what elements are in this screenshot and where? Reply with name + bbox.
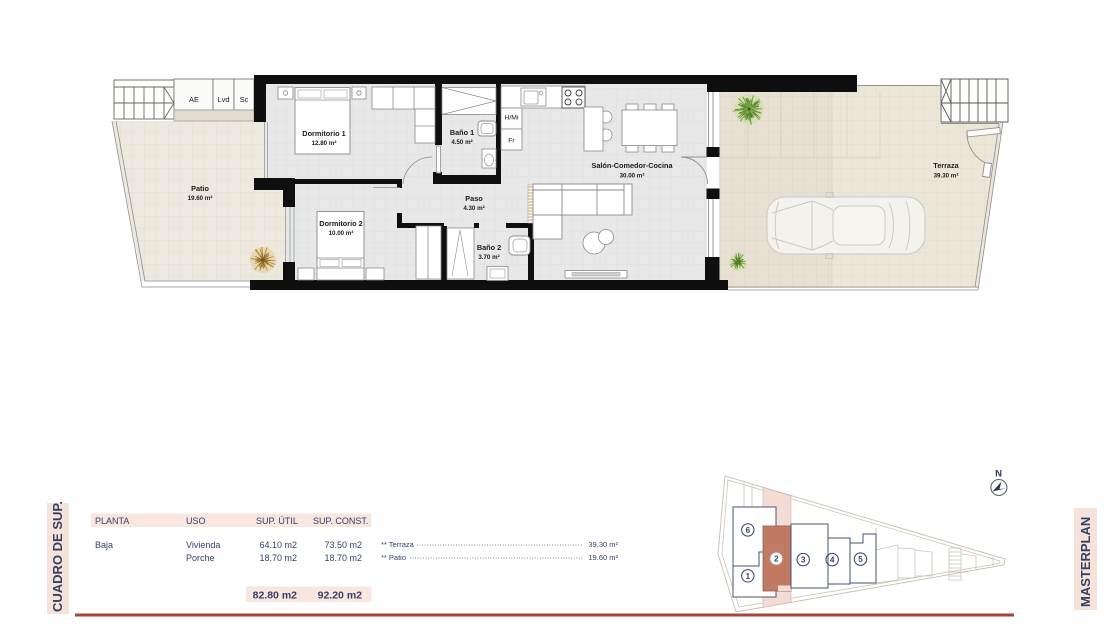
svg-text:Baño 1: Baño 1 [450, 128, 474, 137]
svg-text:64.10 m2: 64.10 m2 [259, 540, 297, 550]
svg-text:Patio: Patio [191, 184, 209, 193]
svg-text:18.70 m2: 18.70 m2 [259, 553, 297, 563]
svg-text:Salón-Comedor-Cocina: Salón-Comedor-Cocina [591, 161, 673, 170]
svg-text:4.50 m²: 4.50 m² [451, 139, 472, 146]
svg-text:** Patio: ** Patio [381, 553, 406, 562]
svg-text:2: 2 [774, 555, 779, 564]
svg-text:Porche: Porche [186, 553, 215, 563]
svg-text:12.80 m²: 12.80 m² [312, 140, 337, 147]
svg-text:4.30 m²: 4.30 m² [463, 205, 484, 212]
svg-text:Dormitorio 1: Dormitorio 1 [302, 129, 345, 138]
svg-text:Paso: Paso [465, 194, 483, 203]
svg-text:AE: AE [189, 95, 199, 104]
svg-text:92.20 m2: 92.20 m2 [318, 590, 363, 602]
svg-text:N: N [995, 469, 1002, 480]
svg-text:30.00 m²: 30.00 m² [620, 173, 645, 180]
svg-text:1: 1 [746, 572, 751, 581]
svg-text:5: 5 [858, 555, 863, 564]
svg-text:Sc: Sc [240, 95, 249, 104]
svg-text:19.60 m²: 19.60 m² [188, 195, 213, 202]
svg-text:Vivienda: Vivienda [186, 540, 220, 550]
svg-text:SUP. CONST.: SUP. CONST. [313, 516, 368, 526]
svg-text:19.60 m²: 19.60 m² [588, 553, 618, 562]
svg-text:Baño 2: Baño 2 [477, 243, 501, 252]
svg-text:39.30 m²: 39.30 m² [934, 173, 959, 180]
svg-text:18.70 m2: 18.70 m2 [324, 553, 362, 563]
svg-text:SUP. ÚTIL: SUP. ÚTIL [256, 516, 298, 526]
svg-text:H/Mi: H/Mi [505, 115, 519, 122]
svg-text:3.70 m²: 3.70 m² [478, 254, 499, 261]
svg-text:10.00 m²: 10.00 m² [329, 230, 354, 237]
svg-text:USO: USO [186, 516, 206, 526]
svg-text:3: 3 [801, 556, 806, 565]
svg-text:Lvd: Lvd [217, 95, 229, 104]
svg-text:MASTERPLAN: MASTERPLAN [1078, 517, 1093, 607]
svg-text:4: 4 [830, 556, 835, 565]
svg-text:Dormitorio 2: Dormitorio 2 [319, 219, 362, 228]
svg-text:Terraza: Terraza [933, 161, 959, 170]
svg-text:39.30 m²: 39.30 m² [588, 540, 618, 549]
svg-text:** Terraza: ** Terraza [381, 540, 415, 549]
svg-text:6: 6 [746, 526, 751, 535]
svg-text:PLANTA: PLANTA [95, 516, 129, 526]
svg-text:82.80 m2: 82.80 m2 [253, 590, 298, 602]
svg-text:Fr: Fr [508, 138, 515, 145]
svg-text:Baja: Baja [95, 540, 113, 550]
svg-text:73.50 m2: 73.50 m2 [324, 540, 362, 550]
svg-text:CUADRO DE SUP.: CUADRO DE SUP. [50, 501, 65, 612]
